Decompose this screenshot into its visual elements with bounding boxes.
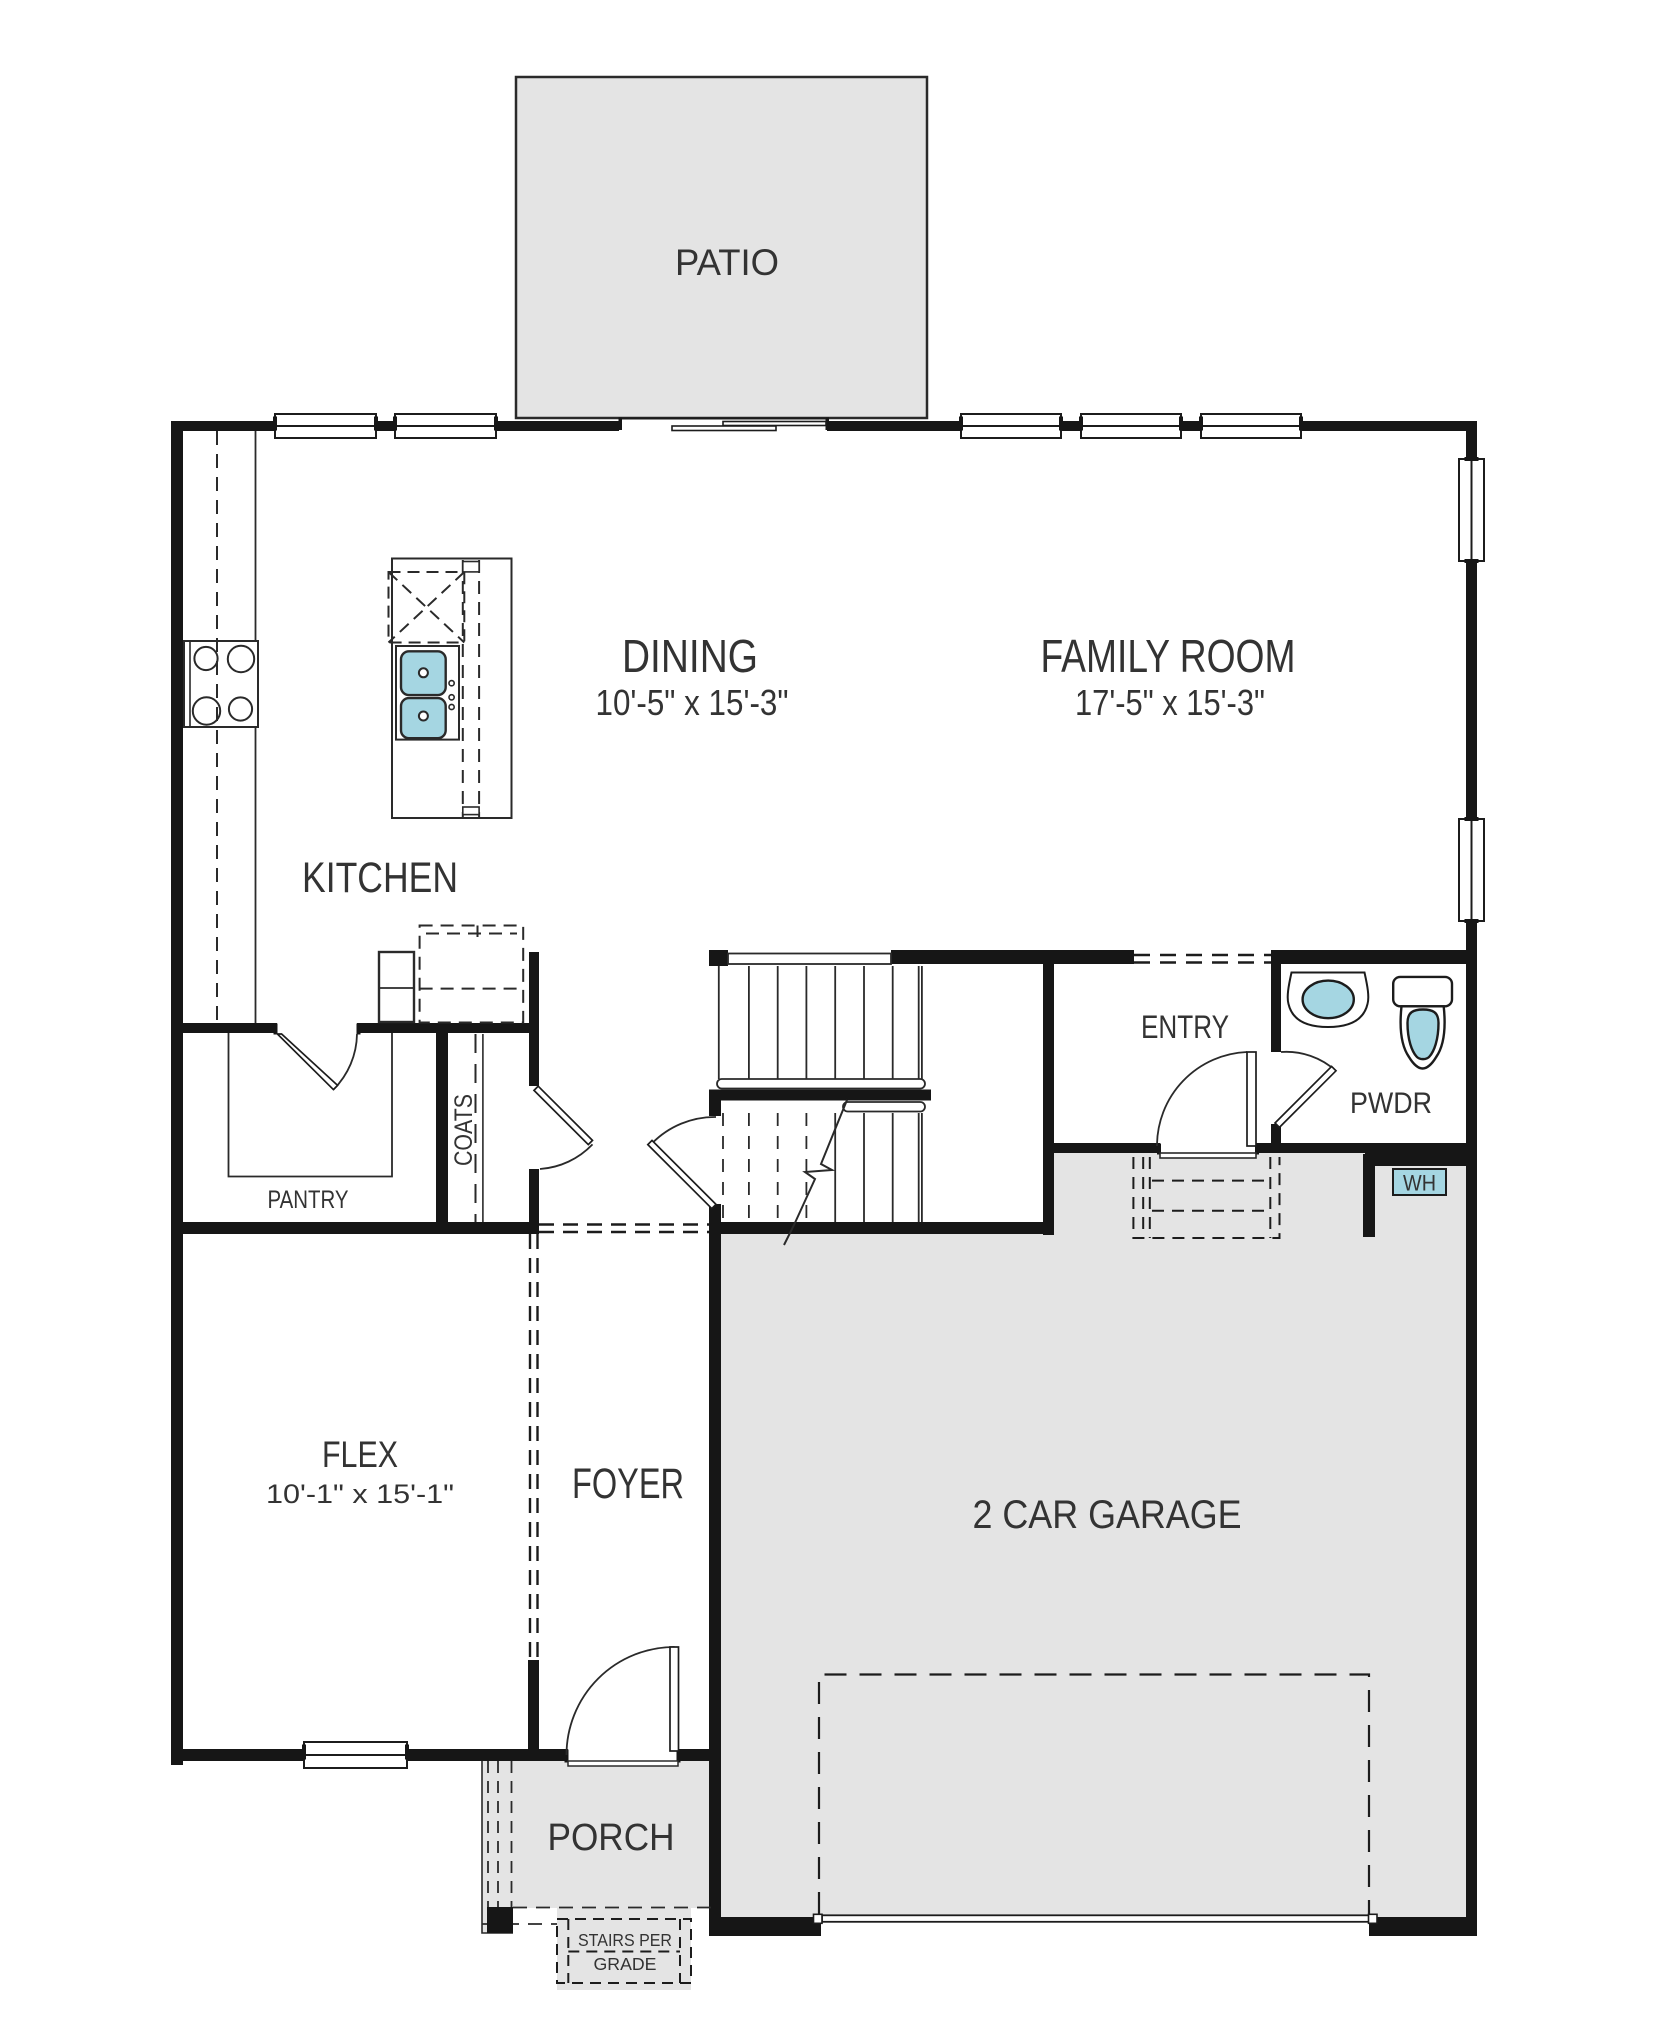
svg-text:ENTRY: ENTRY xyxy=(1141,1009,1229,1045)
svg-text:COATS: COATS xyxy=(450,1094,478,1166)
svg-text:STAIRS PER: STAIRS PER xyxy=(578,1930,672,1950)
svg-text:KITCHEN: KITCHEN xyxy=(302,854,458,902)
svg-text:FOYER: FOYER xyxy=(572,1460,684,1508)
svg-text:17'-5" x 15'-3": 17'-5" x 15'-3" xyxy=(1075,682,1265,723)
svg-text:WH: WH xyxy=(1403,1171,1436,1196)
svg-text:2 CAR GARAGE: 2 CAR GARAGE xyxy=(973,1493,1242,1537)
svg-text:GRADE: GRADE xyxy=(594,1954,657,1974)
svg-text:FAMILY ROOM: FAMILY ROOM xyxy=(1041,630,1296,682)
svg-text:PATIO: PATIO xyxy=(675,242,779,283)
svg-text:PWDR: PWDR xyxy=(1350,1087,1432,1120)
svg-text:10'-5" x 15'-3": 10'-5" x 15'-3" xyxy=(596,682,789,723)
svg-text:PANTRY: PANTRY xyxy=(268,1186,349,1214)
svg-text:FLEX: FLEX xyxy=(322,1434,398,1475)
svg-text:10'-1" x 15'-1": 10'-1" x 15'-1" xyxy=(266,1479,454,1509)
svg-text:PORCH: PORCH xyxy=(548,1817,675,1859)
svg-text:DINING: DINING xyxy=(622,630,758,682)
